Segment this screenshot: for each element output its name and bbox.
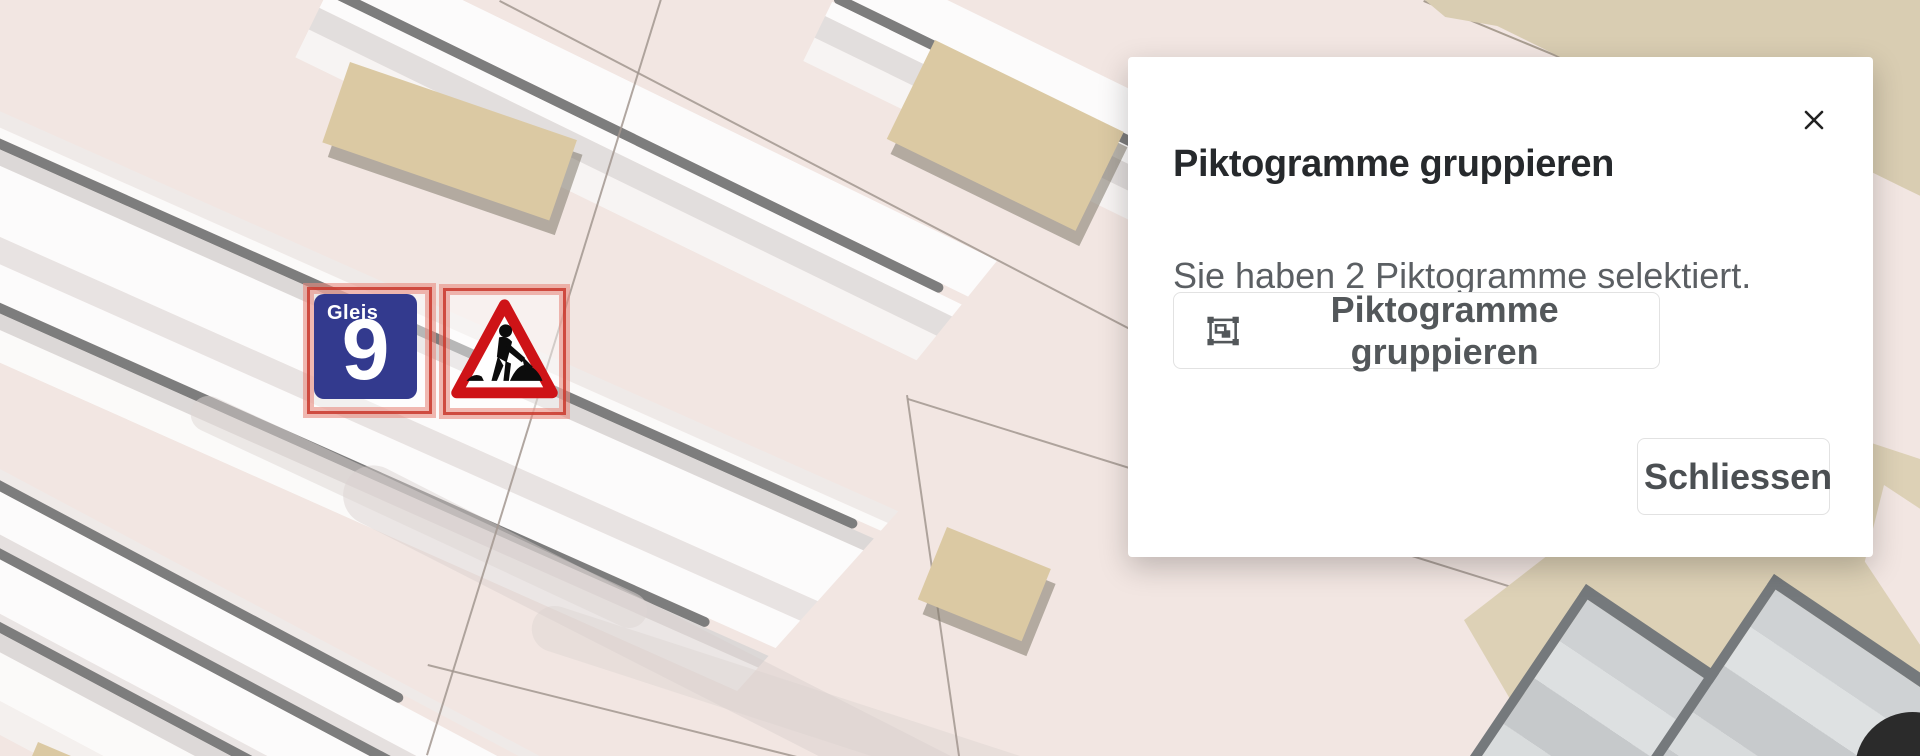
track-number-sign: Gleis 9 — [314, 294, 417, 399]
dialog-title: Piktogramme gruppieren — [1173, 143, 1614, 186]
map-canvas[interactable]: Gleis 9 Piktogramme gruppieren — [0, 0, 1920, 756]
pictogram-construction[interactable] — [443, 288, 566, 415]
gleis-number: 9 — [314, 307, 417, 393]
group-pictograms-button[interactable]: Piktogramme gruppieren — [1173, 292, 1660, 369]
schliessen-button[interactable]: Schliessen — [1637, 438, 1830, 515]
group-objects-icon — [1206, 311, 1240, 351]
close-icon[interactable] — [1791, 97, 1837, 143]
construction-warning-icon — [450, 295, 559, 408]
pictogram-gleis-9[interactable]: Gleis 9 — [307, 287, 432, 414]
group-button-label: Piktogramme gruppieren — [1262, 289, 1627, 373]
group-pictograms-dialog: Piktogramme gruppieren Sie haben 2 Pikto… — [1128, 57, 1873, 557]
building — [918, 527, 1051, 641]
